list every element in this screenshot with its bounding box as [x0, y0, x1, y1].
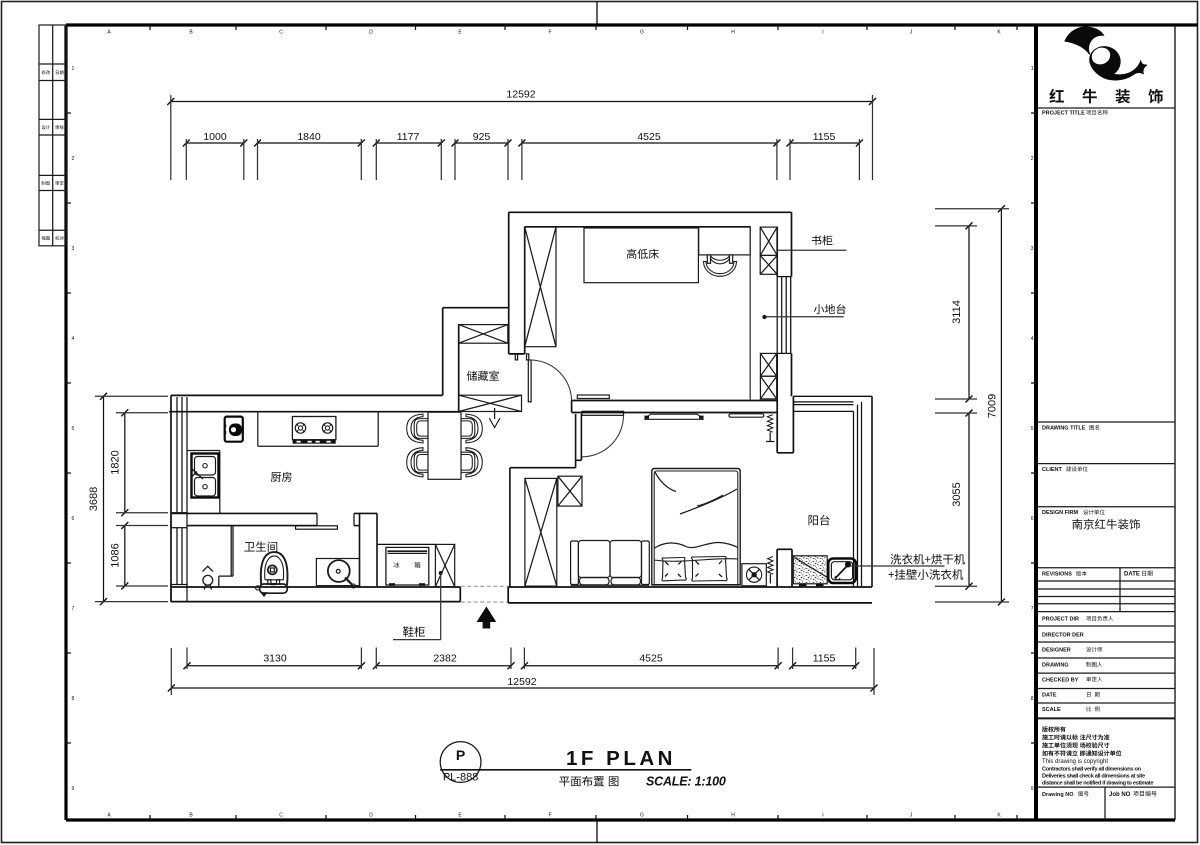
svg-text:3: 3: [72, 246, 75, 252]
svg-text:12592: 12592: [507, 676, 536, 688]
svg-text:PROJECT DIR: PROJECT DIR: [1042, 617, 1079, 623]
svg-text:9: 9: [1031, 786, 1034, 792]
svg-text:This drawing is copyright: This drawing is copyright: [1042, 759, 1108, 765]
svg-text:6: 6: [72, 516, 75, 522]
svg-text:9: 9: [72, 786, 75, 792]
svg-text:1086: 1086: [110, 543, 122, 567]
svg-text:C: C: [279, 30, 283, 36]
svg-text:3055: 3055: [951, 482, 963, 506]
svg-text:Contractors shall verify all d: Contractors shall verify all dimensions …: [1042, 767, 1142, 773]
svg-text:5: 5: [1031, 426, 1034, 432]
svg-text:1840: 1840: [297, 131, 321, 143]
svg-text:F: F: [548, 813, 551, 819]
svg-text:DESIGNER: DESIGNER: [1042, 648, 1071, 654]
svg-text:5: 5: [72, 426, 75, 432]
svg-text:G: G: [640, 813, 644, 819]
svg-text:DESIGN FIRM: DESIGN FIRM: [1042, 510, 1078, 516]
svg-text:12592: 12592: [506, 89, 535, 101]
svg-text:H: H: [731, 30, 735, 36]
svg-text:P: P: [456, 747, 465, 763]
svg-text:3688: 3688: [88, 487, 100, 511]
svg-text:C: C: [279, 813, 283, 819]
svg-text:3: 3: [1031, 246, 1034, 252]
svg-text:4: 4: [1031, 336, 1034, 342]
svg-text:SCALE: SCALE: [1042, 707, 1061, 713]
svg-text:DATE: DATE: [1124, 572, 1140, 578]
svg-text:PROJECT TITLE: PROJECT TITLE: [1042, 111, 1085, 117]
svg-text:4: 4: [72, 336, 75, 342]
svg-text:3114: 3114: [951, 300, 963, 324]
svg-text:1: 1: [72, 66, 75, 72]
svg-text:F: F: [548, 30, 551, 36]
svg-text:I: I: [822, 813, 823, 819]
svg-text:4525: 4525: [637, 131, 661, 143]
svg-text:DIRECTOR DER: DIRECTOR DER: [1042, 633, 1084, 639]
svg-text:DATE: DATE: [1042, 692, 1057, 698]
svg-text:8: 8: [72, 696, 75, 702]
svg-text:Deliveries shall check all dim: Deliveries shall check all dimensions at…: [1042, 774, 1145, 780]
svg-text:2: 2: [72, 156, 75, 162]
svg-text:I: I: [822, 30, 823, 36]
svg-text:925: 925: [473, 131, 491, 143]
svg-text:Job NO: Job NO: [1109, 792, 1131, 798]
svg-text:Drawing NO: Drawing NO: [1042, 792, 1074, 798]
svg-text:H: H: [731, 813, 735, 819]
svg-text:DRAWING TITLE: DRAWING TITLE: [1042, 426, 1086, 432]
svg-text:distance shall be notified if: distance shall be notified if drawing to…: [1042, 781, 1153, 787]
svg-text:G: G: [640, 30, 644, 36]
svg-text:1155: 1155: [813, 652, 836, 664]
svg-text:7009: 7009: [987, 394, 999, 418]
svg-text:2: 2: [1031, 156, 1034, 162]
svg-text:2382: 2382: [433, 652, 457, 664]
svg-text:1F PLAN: 1F PLAN: [566, 747, 676, 770]
svg-text:8: 8: [1031, 696, 1034, 702]
svg-text:7: 7: [1031, 606, 1034, 612]
svg-text:1177: 1177: [397, 131, 420, 143]
svg-text:3130: 3130: [263, 652, 287, 664]
svg-text:D: D: [369, 30, 373, 36]
svg-text:1: 1: [1031, 66, 1034, 72]
svg-text:D: D: [369, 813, 373, 819]
svg-text:DRAWING: DRAWING: [1042, 663, 1069, 669]
svg-text:1155: 1155: [813, 131, 836, 143]
svg-text:CLIENT: CLIENT: [1042, 467, 1063, 473]
svg-text:SCALE: 1:100: SCALE: 1:100: [646, 775, 726, 789]
svg-text:7: 7: [72, 606, 75, 612]
svg-text:4525: 4525: [639, 652, 663, 664]
svg-text:PL-888: PL-888: [443, 772, 478, 784]
svg-text:6: 6: [1031, 516, 1034, 522]
svg-text:REVISIONS: REVISIONS: [1042, 572, 1072, 578]
svg-text:1000: 1000: [203, 131, 227, 143]
svg-text:1820: 1820: [110, 450, 122, 474]
svg-text:CHECKED BY: CHECKED BY: [1042, 677, 1079, 683]
